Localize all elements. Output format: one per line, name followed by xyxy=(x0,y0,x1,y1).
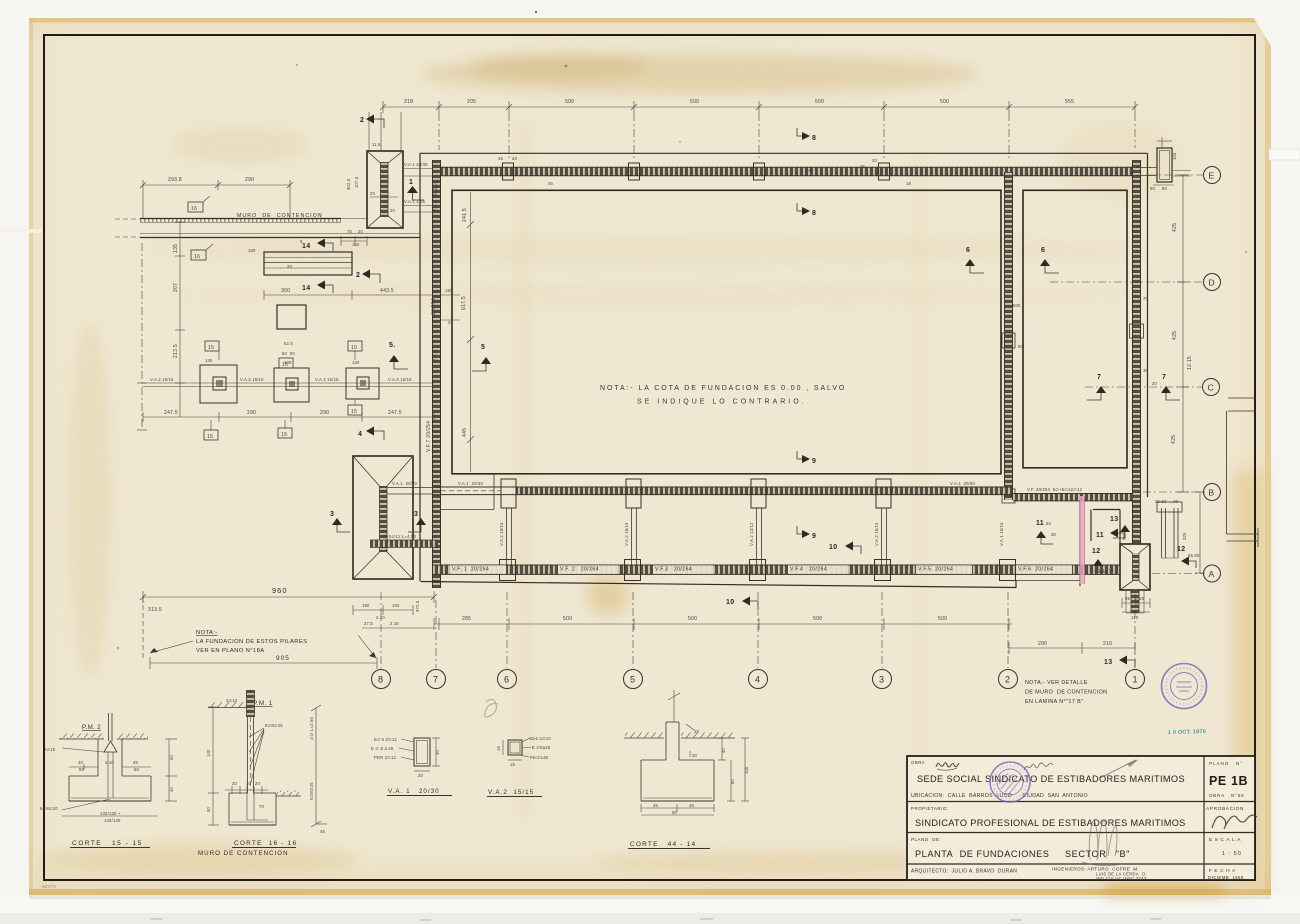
svg-text:7: 7 xyxy=(1162,374,1166,381)
svg-text:960: 960 xyxy=(272,586,288,595)
svg-text:V.A.2 15/15: V.A.2 15/15 xyxy=(624,522,629,546)
svg-text:SINDICATO PROFESIONAL DE ESTIB: SINDICATO PROFESIONAL DE ESTIBADORES MAR… xyxy=(915,818,1186,828)
svg-text:425: 425 xyxy=(1171,435,1177,444)
svg-text:372.5: 372.5 xyxy=(415,600,420,612)
svg-text:10: 10 xyxy=(726,599,734,606)
svg-text:PER 2∅12: PER 2∅12 xyxy=(374,755,396,760)
svg-text:150: 150 xyxy=(392,603,400,608)
svg-text:12: 12 xyxy=(1092,548,1100,555)
svg-text:905: 905 xyxy=(276,655,290,662)
svg-text:45: 45 xyxy=(653,803,659,808)
svg-text:1: 1 xyxy=(409,179,413,186)
svg-text:205: 205 xyxy=(467,99,476,105)
svg-text:1: 1 xyxy=(1133,675,1138,685)
svg-text:NOTA:-: NOTA:- xyxy=(196,630,218,636)
svg-text:500: 500 xyxy=(813,616,822,622)
svg-text:60: 60 xyxy=(1046,521,1052,526)
svg-text:45: 45 xyxy=(689,803,695,808)
svg-text:35: 35 xyxy=(1143,368,1149,373)
svg-text:6: 6 xyxy=(966,247,970,254)
svg-text:2: 2 xyxy=(1005,675,1010,685)
svg-text:4: 4 xyxy=(755,675,760,685)
svg-text:247.5: 247.5 xyxy=(388,410,402,416)
svg-text:50: 50 xyxy=(206,806,211,812)
svg-text:100: 100 xyxy=(744,766,749,774)
svg-text:500: 500 xyxy=(938,616,947,622)
svg-text:40: 40 xyxy=(78,760,84,765)
svg-text:150: 150 xyxy=(352,242,360,247)
svg-text:11.5: 11.5 xyxy=(372,142,381,147)
svg-text:140/140: 140/140 xyxy=(104,818,121,823)
svg-text:13: 13 xyxy=(1110,516,1118,523)
svg-text:4.10: 4.10 xyxy=(105,760,114,765)
svg-text:CORTE 44 - 14: CORTE 44 - 14 xyxy=(630,841,696,848)
svg-text:293.8: 293.8 xyxy=(168,177,182,183)
svg-text:P.M. 2: P.M. 2 xyxy=(82,725,101,731)
svg-text:2.15: 2.15 xyxy=(390,621,399,626)
svg-text:285: 285 xyxy=(462,616,471,622)
svg-text:130: 130 xyxy=(284,360,292,365)
svg-text:500: 500 xyxy=(688,616,697,622)
svg-text:290: 290 xyxy=(245,177,254,183)
svg-text:16: 16 xyxy=(191,206,197,212)
svg-text:20: 20 xyxy=(872,158,878,163)
svg-text:V.F.5 20/264: V.F.5 20/264 xyxy=(918,567,953,573)
svg-text:.90: .90 xyxy=(1172,499,1179,504)
svg-text:425: 425 xyxy=(1172,331,1178,340)
svg-text:80: 80 xyxy=(1162,186,1168,191)
svg-text:45: 45 xyxy=(133,760,139,765)
svg-text:55: 55 xyxy=(1139,596,1145,601)
svg-text:SEDE SOCIAL SINDICATO DE ESTIB: SEDE SOCIAL SINDICATO DE ESTIBADORES MAR… xyxy=(917,774,1185,784)
svg-text:OBRA N°50: OBRA N°50 xyxy=(1209,793,1244,798)
svg-text:150: 150 xyxy=(248,248,256,253)
svg-text:V.F.7 20/254: V.F.7 20/254 xyxy=(426,421,432,452)
svg-text:V.F. 20/254 5∅+5∅12∅12: V.F. 20/254 5∅+5∅12∅12 xyxy=(1027,487,1083,492)
svg-text:V.F. 1 20/264: V.F. 1 20/264 xyxy=(452,567,489,573)
svg-text:Per∅L60: Per∅L60 xyxy=(530,755,549,760)
svg-text:4: 4 xyxy=(358,431,362,438)
svg-text:600: 600 xyxy=(1005,333,1013,338)
svg-text:8: 8 xyxy=(378,675,383,685)
svg-text:7: 7 xyxy=(1097,374,1101,381)
svg-text:5: 5 xyxy=(481,344,485,351)
svg-text:130/130 +: 130/130 + xyxy=(100,811,121,816)
svg-text:MURO DE CONTENCION: MURO DE CONTENCION xyxy=(237,213,323,219)
svg-text:70: 70 xyxy=(1143,296,1149,301)
svg-text:60: 60 xyxy=(169,754,174,760)
svg-text:180: 180 xyxy=(445,288,453,293)
svg-text:14: 14 xyxy=(302,243,310,250)
svg-text:10: 10 xyxy=(351,345,357,351)
svg-text:425: 425 xyxy=(1172,223,1178,232)
svg-text:V.F.3 20/264: V.F.3 20/264 xyxy=(655,567,692,573)
svg-text:40: 40 xyxy=(721,747,726,753)
svg-text:500: 500 xyxy=(690,99,699,105)
svg-text:218: 218 xyxy=(404,99,413,105)
svg-text:150: 150 xyxy=(362,603,370,608)
svg-text:A: A xyxy=(1209,569,1215,579)
svg-text:15: 15 xyxy=(207,434,213,440)
svg-text:OBRA: OBRA xyxy=(911,760,925,765)
svg-text:V.A.2 15/15: V.A.2 15/15 xyxy=(874,522,879,546)
svg-text:20: 20 xyxy=(694,729,700,734)
svg-text:DICIEMB 1969: DICIEMB 1969 xyxy=(1208,875,1244,880)
svg-text:50: 50 xyxy=(134,767,140,772)
svg-text:V.A.2 15/15: V.A.2 15/15 xyxy=(488,789,534,796)
svg-text:500: 500 xyxy=(940,99,949,105)
svg-text:130: 130 xyxy=(352,360,360,365)
svg-text:LA FUNDACION DE ESTOS PILARES: LA FUNDACION DE ESTOS PILARES xyxy=(196,639,307,645)
svg-text:V.A.1 20/30: V.A.1 20/30 xyxy=(392,481,418,486)
svg-text:DE MURO DE CONTENCION: DE MURO DE CONTENCION xyxy=(1025,690,1107,696)
svg-text:210: 210 xyxy=(1103,641,1112,647)
svg-text:FECHA: FECHA xyxy=(1209,868,1238,874)
svg-text:V.A.1 15/15: V.A.1 15/15 xyxy=(999,522,1004,546)
svg-text:E∅'s 2∅12: E∅'s 2∅12 xyxy=(374,737,397,742)
svg-text:5+5∅12 L=4.50: 5+5∅12 L=4.50 xyxy=(384,534,417,539)
svg-text:20: 20 xyxy=(1152,381,1158,386)
svg-text:241.5: 241.5 xyxy=(462,208,468,222)
svg-text:V.F.6 20/264: V.F.6 20/264 xyxy=(1018,567,1053,573)
svg-text:247.5: 247.5 xyxy=(164,410,178,416)
svg-text:52.5: 52.5 xyxy=(284,341,293,346)
svg-text:V.A.1 20/30: V.A.1 20/30 xyxy=(404,162,428,167)
svg-text:20: 20 xyxy=(287,264,293,269)
svg-text:V.A.2 12/12: V.A.2 12/12 xyxy=(749,522,754,546)
svg-text:45: 45 xyxy=(498,156,504,161)
svg-text:445: 445 xyxy=(462,428,468,437)
svg-text:75: 75 xyxy=(347,229,353,234)
svg-text:45: 45 xyxy=(320,829,326,834)
svg-text:8∅8∅25: 8∅8∅25 xyxy=(265,723,283,728)
svg-text:V.F.8: V.F.8 xyxy=(433,350,439,362)
svg-text:8: 8 xyxy=(812,135,816,142)
svg-text:5: 5 xyxy=(630,675,635,685)
svg-text:30: 30 xyxy=(692,753,698,758)
svg-text:500: 500 xyxy=(563,616,572,622)
svg-text:290: 290 xyxy=(320,410,329,416)
svg-text:ING CIV UC INSC 3743: ING CIV UC INSC 3743 xyxy=(1096,876,1147,881)
svg-text:13: 13 xyxy=(1104,659,1112,666)
svg-text:PE 1B: PE 1B xyxy=(1209,774,1248,788)
svg-text:20: 20 xyxy=(358,229,364,234)
svg-text:P.M. 1: P.M. 1 xyxy=(253,700,273,707)
svg-text:443.5: 443.5 xyxy=(380,288,394,294)
svg-text:E: E xyxy=(1209,171,1215,181)
svg-text:V.A.2 15/15: V.A.2 15/15 xyxy=(499,522,504,546)
svg-text:70: 70 xyxy=(259,804,265,809)
svg-text:27.5: 27.5 xyxy=(364,621,373,626)
svg-text:20: 20 xyxy=(232,781,238,786)
svg-text:25: 25 xyxy=(448,320,454,325)
svg-text:40: 40 xyxy=(169,786,174,792)
svg-text:135: 135 xyxy=(173,244,179,253)
svg-text:55: 55 xyxy=(1125,596,1131,601)
svg-text:NOTA:- VER DETALLE: NOTA:- VER DETALLE xyxy=(1025,680,1088,686)
svg-text:E ∅ 6 a 20: E ∅ 6 a 20 xyxy=(371,746,394,751)
svg-text:11: 11 xyxy=(1036,520,1044,527)
svg-text:20: 20 xyxy=(390,208,396,213)
svg-text:10: 10 xyxy=(829,544,837,551)
svg-text:290: 290 xyxy=(1038,641,1047,647)
svg-text:MURO DE CONTENCION: MURO DE CONTENCION xyxy=(198,850,289,857)
svg-text:PLANO N°: PLANO N° xyxy=(1209,761,1243,766)
svg-text:9: 9 xyxy=(812,458,816,465)
svg-text:20: 20 xyxy=(512,156,518,161)
svg-text:6∅8∅25: 6∅8∅25 xyxy=(309,782,314,800)
svg-text:V.A.1 20/30: V.A.1 20/30 xyxy=(950,481,976,486)
svg-text:D: D xyxy=(1209,278,1215,288)
svg-text:105: 105 xyxy=(1172,152,1177,160)
svg-text:617.5: 617.5 xyxy=(461,296,467,310)
svg-text:V.F. 2 20/264: V.F. 2 20/264 xyxy=(560,567,599,573)
svg-text:2: 2 xyxy=(356,272,360,279)
svg-text:50 50: 50 50 xyxy=(282,351,295,356)
svg-text:555: 555 xyxy=(1065,99,1074,105)
svg-text:10: 10 xyxy=(246,781,252,786)
svg-text:500: 500 xyxy=(1013,303,1021,308)
svg-text:ESCALA: ESCALA xyxy=(1209,837,1243,843)
svg-text:325: 325 xyxy=(1182,532,1187,540)
svg-text:V.A.1 20/30: V.A.1 20/30 xyxy=(458,481,484,486)
svg-text:APROBACION: APROBACION xyxy=(1206,806,1244,812)
svg-text:CORTE 16 - 16: CORTE 16 - 16 xyxy=(234,840,297,847)
svg-text:300: 300 xyxy=(281,288,290,294)
svg-text:SE INDIQUE LO CONTRARIO.: SE INDIQUE LO CONTRARIO. xyxy=(637,399,807,406)
svg-text:25.60: 25.60 xyxy=(1155,499,1167,504)
svg-text:657/73: 657/73 xyxy=(42,884,56,889)
svg-text:∅∅ L=2.50: ∅∅ L=2.50 xyxy=(309,716,314,740)
svg-text:30: 30 xyxy=(435,749,440,755)
svg-text:50: 50 xyxy=(79,767,85,772)
svg-text:B: B xyxy=(1209,488,1215,498)
svg-text:15: 15 xyxy=(281,432,287,438)
svg-text:V.F.9 20/254: V.F.9 20/254 xyxy=(433,181,439,212)
svg-text:107.5: 107.5 xyxy=(354,176,359,188)
svg-text:V.A.2 15/10: V.A.2 15/10 xyxy=(240,377,264,382)
svg-text:1 0 OCT. 1970: 1 0 OCT. 1970 xyxy=(1168,729,1206,736)
svg-text:5.: 5. xyxy=(389,342,395,349)
svg-text:500: 500 xyxy=(565,99,574,105)
svg-text:20: 20 xyxy=(418,773,424,778)
svg-text:18: 18 xyxy=(906,181,912,186)
svg-text:90: 90 xyxy=(672,810,678,815)
svg-text:15: 15 xyxy=(208,345,214,351)
svg-text:12: 12 xyxy=(1177,546,1185,553)
svg-text:VER EN PLANO N°18A: VER EN PLANO N°18A xyxy=(196,648,264,654)
svg-text:CORTE 15 - 15: CORTE 15 - 15 xyxy=(72,840,143,847)
svg-text:313.5: 313.5 xyxy=(148,607,162,613)
svg-text:50: 50 xyxy=(1150,186,1156,191)
svg-text:80: 80 xyxy=(1018,344,1024,349)
svg-text:20/254: 20/254 xyxy=(431,298,437,315)
svg-text:3: 3 xyxy=(330,511,334,518)
svg-text:NOTA:- LA COTA DE FUNDACION ES: NOTA:- LA COTA DE FUNDACION ES 0.00 , SA… xyxy=(600,385,846,392)
svg-text:ARQUITECTO: JULIO A. BRAVO D: ARQUITECTO: JULIO A. BRAVO DURAN xyxy=(911,869,1017,875)
svg-text:E ∅6a25: E ∅6a25 xyxy=(532,745,551,750)
svg-text:2.80: 2.80 xyxy=(376,615,385,620)
svg-text:5∅8∅20: 5∅8∅20 xyxy=(40,806,58,811)
svg-text:290: 290 xyxy=(247,410,256,416)
svg-text:V.A.2 15/15: V.A.2 15/15 xyxy=(150,377,174,382)
svg-text:V.A.2 15/15: V.A.2 15/15 xyxy=(388,377,412,382)
svg-text:16: 16 xyxy=(806,168,812,173)
svg-text:V.A. 1 20/30: V.A. 1 20/30 xyxy=(388,788,440,795)
svg-text:EN LAMINA N°"17 B": EN LAMINA N°"17 B" xyxy=(1025,699,1083,705)
svg-text:6: 6 xyxy=(504,675,509,685)
svg-text:12.15: 12.15 xyxy=(1187,356,1193,370)
svg-text:15: 15 xyxy=(496,745,501,751)
svg-text:45: 45 xyxy=(860,164,866,169)
svg-text:207: 207 xyxy=(173,283,179,292)
svg-text:C: C xyxy=(1208,383,1214,393)
svg-text:V.A.2 15/15: V.A.2 15/15 xyxy=(315,377,339,382)
svg-text:15: 15 xyxy=(351,409,357,415)
svg-text:V.F.4 20/264: V.F.4 20/264 xyxy=(790,567,827,573)
svg-text:Des 2∅10: Des 2∅10 xyxy=(530,736,551,741)
svg-text:2: 2 xyxy=(360,117,364,124)
svg-text:11: 11 xyxy=(1096,532,1104,539)
svg-text:PLANO DE:: PLANO DE: xyxy=(911,837,941,842)
svg-text:60: 60 xyxy=(730,778,735,784)
svg-text:1 : 50: 1 : 50 xyxy=(1222,851,1242,857)
svg-text:30: 30 xyxy=(1051,532,1057,537)
svg-text:140: 140 xyxy=(206,749,211,757)
svg-text:3: 3 xyxy=(414,511,418,518)
svg-text:2∅10: 2∅10 xyxy=(44,747,56,752)
svg-text:8: 8 xyxy=(812,210,816,217)
svg-text:110: 110 xyxy=(1131,615,1139,620)
svg-text:45: 45 xyxy=(548,181,554,186)
svg-text:14: 14 xyxy=(302,285,310,292)
svg-text:7: 7 xyxy=(433,675,438,685)
svg-text:6: 6 xyxy=(1041,247,1045,254)
svg-text:213.5: 213.5 xyxy=(173,344,179,358)
svg-text:55.90: 55.90 xyxy=(1188,553,1200,558)
svg-text:PROPIETARIO:: PROPIETARIO: xyxy=(911,806,949,811)
svg-text:302.5: 302.5 xyxy=(346,178,351,190)
svg-text:15: 15 xyxy=(510,762,516,767)
svg-text:16: 16 xyxy=(194,254,200,260)
svg-text:20: 20 xyxy=(255,781,261,786)
svg-text:500: 500 xyxy=(815,99,824,105)
svg-text:20: 20 xyxy=(370,191,376,196)
svg-text:130: 130 xyxy=(205,358,213,363)
svg-text:9: 9 xyxy=(812,533,816,540)
svg-text:3: 3 xyxy=(879,675,884,685)
